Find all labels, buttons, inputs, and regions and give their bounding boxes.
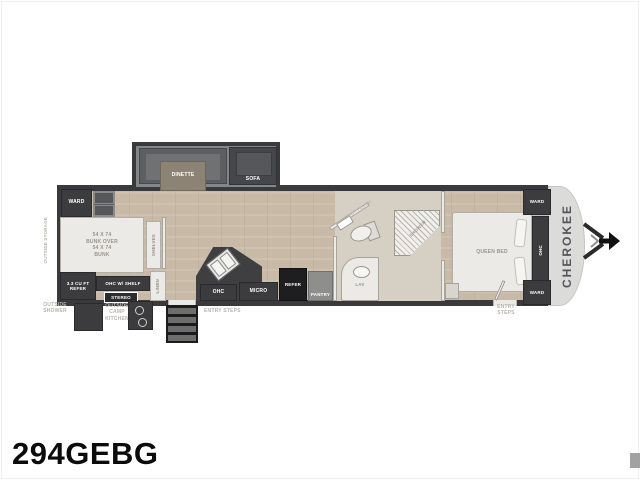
linen-cabinet: LINEN — [150, 271, 166, 301]
kitchen-ohc: OHC — [200, 284, 237, 301]
pantry: PANTRY — [308, 271, 333, 301]
pillow — [514, 219, 528, 248]
bunkroom-wall — [162, 217, 166, 269]
entry-steps-icon — [166, 305, 198, 343]
linen-label: LINEN — [155, 279, 161, 294]
mini-refer-label-line2: REFER — [70, 286, 86, 291]
bunkroom-wardrobe: WARD — [61, 189, 92, 217]
rear-storage: OUTSIDE STORAGE — [40, 203, 52, 277]
outside-cooktop — [128, 301, 153, 330]
entry-steps-caption: ENTRY STEPS — [204, 308, 266, 314]
bathroom-vanity: LAV — [341, 257, 379, 301]
front-entry-steps-line: STEPS — [491, 310, 521, 316]
bedroom-ohc: OHC — [532, 216, 549, 284]
bunk-cabinet-door — [94, 205, 114, 217]
bunk-shelves-label: SHELVES — [151, 234, 157, 256]
bedroom-wall-upper — [441, 191, 445, 233]
double-bunks: 54 X 74 BUNK OVER 54 X 74 BUNK — [60, 217, 144, 273]
entry-steps-caption-text: ENTRY STEPS — [204, 308, 241, 314]
bunk-cabinet — [93, 191, 115, 217]
microwave: MICRO — [239, 282, 278, 301]
queen-bed-label: QUEEN BED — [476, 249, 508, 256]
bunk-size-line: BUNK — [94, 252, 109, 259]
sofa: SOFA — [229, 147, 277, 185]
stereo-label: STEREO — [111, 295, 131, 300]
brand-text: CHEROKEE — [560, 204, 574, 288]
top-wall — [57, 185, 548, 191]
rear-storage-label: OUTSIDE STORAGE — [43, 217, 49, 263]
lav-label: LAV — [342, 282, 378, 288]
queen-bed: QUEEN BED — [452, 212, 532, 292]
burner-icon — [138, 318, 147, 327]
front-cap: CHEROKEE — [548, 186, 585, 306]
bedroom-ward-top-label: WARD — [530, 199, 545, 204]
bunk-cabinet-door — [94, 192, 114, 204]
bedroom-ohc-label: OHC — [538, 245, 543, 256]
bathroom-wall — [333, 236, 337, 301]
model-number: 294GEBG — [12, 436, 159, 472]
bedroom-ward-top: WARD — [523, 189, 551, 215]
bunkroom-wardrobe-label: WARD — [68, 200, 84, 206]
bunkroom-mini-refer: 3.3 CU FT REFER — [60, 272, 96, 300]
bedroom-ward-bottom-label: WARD — [530, 290, 545, 295]
hitch-arrow-icon — [583, 221, 621, 261]
dinette-table: DINETTE — [160, 161, 206, 191]
refrigerator-label: REFER — [285, 282, 301, 287]
lav-sink-icon — [353, 266, 370, 278]
sofa-label: SOFA — [230, 174, 276, 186]
sofa-cushions — [236, 152, 272, 176]
kitchen-ohc-label: OHC — [213, 290, 225, 296]
floorplan-page: CHEROKEE DINETTE SOFA WARD 54 X 74 BUNK … — [0, 0, 640, 480]
dinette-label: DINETTE — [161, 162, 205, 190]
microwave-label: MICRO — [250, 289, 268, 295]
ohc-with-shelf-label: OHC W/ SHELF — [105, 281, 140, 286]
watermark-block — [630, 453, 640, 468]
refrigerator: REFER — [279, 268, 307, 301]
front-entry-steps-caption: ENTRY STEPS — [491, 304, 521, 317]
nightstand — [445, 283, 459, 299]
bunk-shelves: SHELVES — [146, 221, 161, 269]
outside-shower: OUTSIDE SHOWER — [34, 302, 76, 315]
burner-icon — [135, 306, 144, 315]
pantry-label: PANTRY — [311, 292, 330, 300]
bedroom-ward-bottom: WARD — [523, 280, 551, 305]
outside-griddle — [74, 303, 103, 331]
outside-shower-line: SHOWER — [34, 308, 76, 314]
ohc-with-shelf: OHC W/ SHELF — [96, 276, 150, 291]
